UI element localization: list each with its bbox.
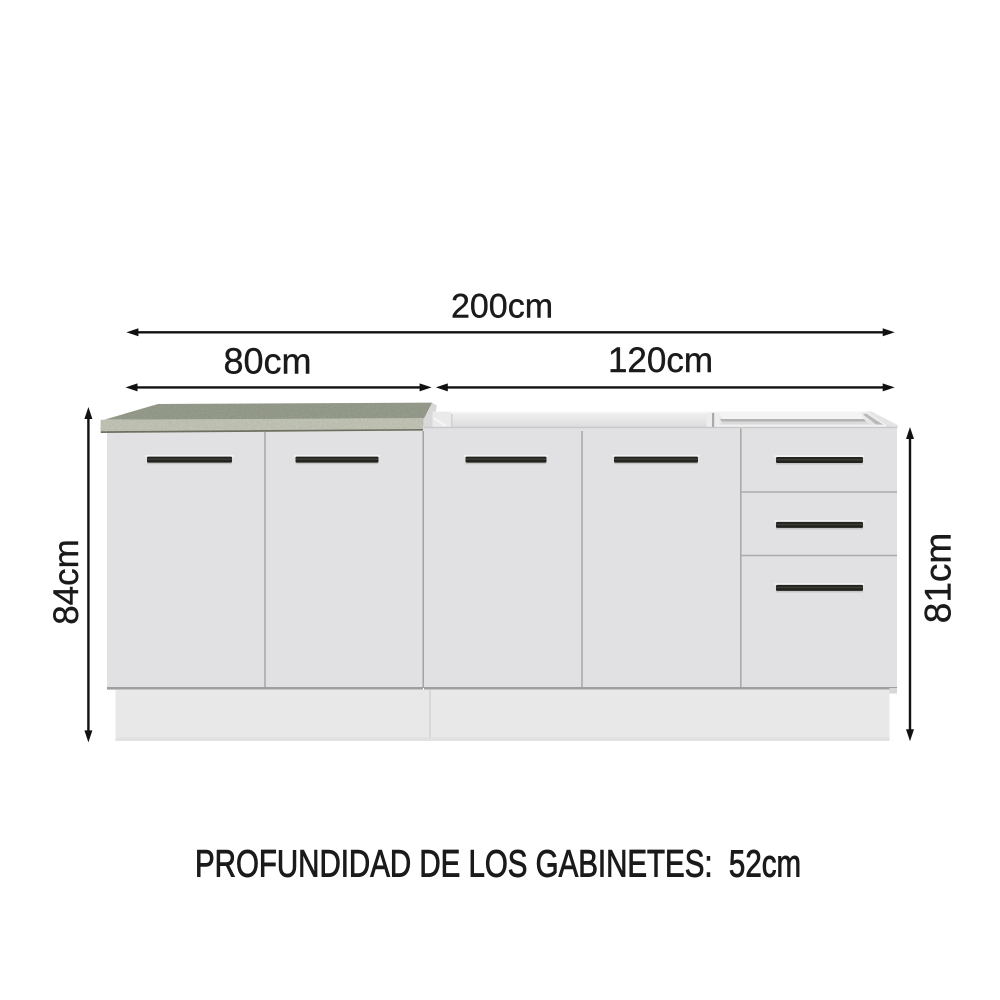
svg-text:120cm: 120cm: [608, 341, 713, 380]
svg-text:84cm: 84cm: [47, 539, 86, 625]
svg-text:PROFUNDIDAD DE LOS GABINETES:: PROFUNDIDAD DE LOS GABINETES: 52cm: [195, 844, 801, 886]
svg-text:81cm: 81cm: [918, 533, 959, 623]
svg-text:200cm: 200cm: [451, 288, 553, 326]
svg-text:80cm: 80cm: [223, 341, 311, 382]
